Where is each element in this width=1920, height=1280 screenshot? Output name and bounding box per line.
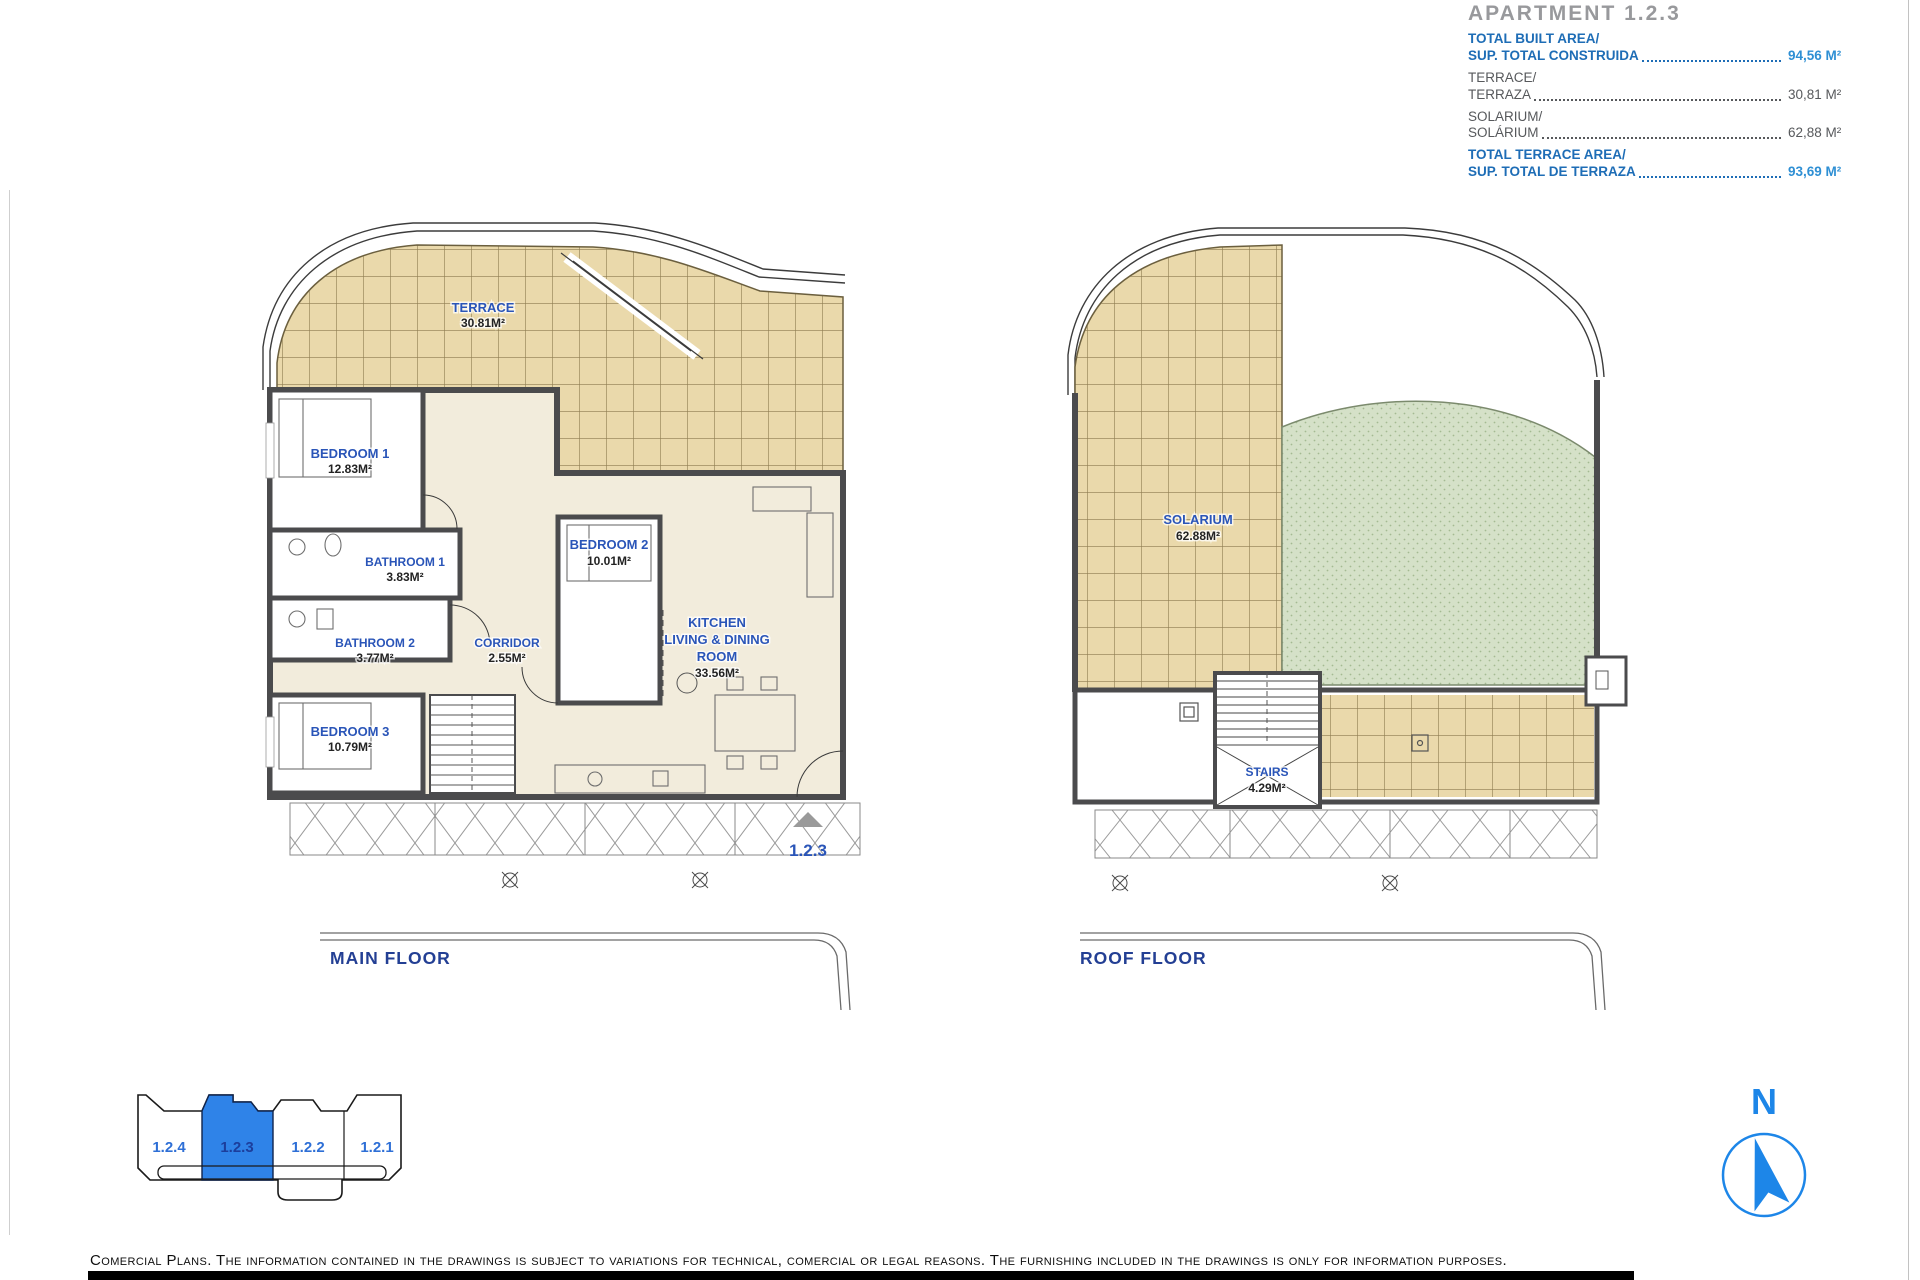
info-value: 62,88 M² — [1784, 125, 1892, 142]
label-kitchen-2: LIVING & DINING — [664, 632, 769, 647]
building-key-plan: 1.2.4 1.2.3 1.2.2 1.2.1 — [120, 1080, 430, 1215]
main-floor-plan: 1.2.3 TERRACE 30.81M² BEDROOM 1 12.83M² … — [255, 195, 875, 900]
main-floor-caption: MAIN FLOOR — [330, 948, 451, 969]
info-label-es: TERRAZA — [1468, 87, 1531, 104]
area-bathroom1: 3.83M² — [386, 570, 423, 584]
survey-markers — [502, 872, 708, 888]
area-terrace: 30.81M² — [461, 316, 505, 330]
stairwell — [430, 695, 515, 793]
label-corridor: CORRIDOR — [474, 636, 540, 650]
info-label-en: SOLARIUM/ — [1468, 109, 1784, 126]
label-bathroom1: BATHROOM 1 — [365, 555, 445, 569]
area-bathroom2: 3.77M² — [356, 651, 393, 665]
dot-leader — [1642, 60, 1781, 62]
footer-bar — [88, 1271, 1634, 1280]
window — [266, 423, 274, 478]
plan-sheet: APARTMENT 1.2.3 TOTAL BUILT AREA/ SUP. T… — [0, 0, 1920, 1280]
info-label-en: TOTAL BUILT AREA/ — [1468, 31, 1784, 48]
roof-bottom-tiles — [1322, 695, 1594, 797]
label-kitchen-3: ROOM — [697, 649, 737, 664]
label-kitchen-1: KITCHEN — [688, 615, 746, 630]
info-value: 93,69 M² — [1784, 164, 1892, 181]
dot-leader — [1534, 99, 1781, 101]
roof-floor-section-line — [1078, 930, 1618, 1012]
structure-strip — [1095, 810, 1597, 858]
page-edge-left — [9, 190, 10, 1235]
info-label-es: SOLÁRIUM — [1468, 125, 1539, 142]
area-solarium: 62.88M² — [1176, 529, 1220, 543]
info-value: 30,81 M² — [1784, 87, 1892, 104]
label-bedroom3: BEDROOM 3 — [311, 724, 390, 739]
area-bedroom3: 10.79M² — [328, 740, 372, 754]
info-row-terrace: TERRACE/ TERRAZA 30,81 M² — [1468, 70, 1892, 104]
north-label: N — [1751, 1081, 1777, 1122]
solarium-floor — [1075, 245, 1282, 690]
compass: N — [1712, 1078, 1822, 1228]
area-kitchen: 33.56M² — [695, 666, 739, 680]
main-floor-section-line — [318, 930, 863, 1012]
window — [266, 717, 274, 767]
roof-floor-plan: SOLARIUM 62.88M² STAIRS 4.29M² — [1060, 195, 1640, 900]
area-corridor: 2.55M² — [488, 651, 525, 665]
key-unit-1-2-4[interactable]: 1.2.4 — [152, 1139, 186, 1156]
info-label-es: SUP. TOTAL CONSTRUIDA — [1468, 48, 1639, 65]
entrance-marker-label: 1.2.3 — [789, 841, 827, 860]
info-row-solarium: SOLARIUM/ SOLÁRIUM 62,88 M² — [1468, 109, 1892, 143]
label-bedroom1: BEDROOM 1 — [311, 446, 390, 461]
survey-markers — [1112, 875, 1398, 891]
label-bathroom2: BATHROOM 2 — [335, 636, 415, 650]
disclaimer-text: Comercial Plans. The information contain… — [90, 1252, 1507, 1269]
label-stairs: STAIRS — [1245, 765, 1288, 779]
label-bedroom2: BEDROOM 2 — [570, 537, 649, 552]
info-label-en: TOTAL TERRACE AREA/ — [1468, 147, 1784, 164]
info-label-en: TERRACE/ — [1468, 70, 1784, 87]
apartment-info-panel: APARTMENT 1.2.3 TOTAL BUILT AREA/ SUP. T… — [1468, 2, 1892, 181]
dot-leader — [1639, 176, 1781, 178]
info-label-es: SUP. TOTAL DE TERRAZA — [1468, 164, 1636, 181]
key-unit-1-2-2[interactable]: 1.2.2 — [291, 1139, 324, 1156]
label-solarium: SOLARIUM — [1163, 512, 1232, 527]
info-row-terrace-total: TOTAL TERRACE AREA/ SUP. TOTAL DE TERRAZ… — [1468, 147, 1892, 181]
page-edge-right — [1908, 0, 1909, 1280]
key-unit-1-2-3[interactable]: 1.2.3 — [220, 1139, 253, 1156]
info-row-built-area: TOTAL BUILT AREA/ SUP. TOTAL CONSTRUIDA … — [1468, 31, 1892, 65]
dot-leader — [1542, 137, 1781, 139]
roof-step — [1586, 657, 1626, 705]
label-terrace: TERRACE — [452, 300, 515, 315]
green-deck — [1282, 401, 1595, 685]
structure-strip — [290, 803, 860, 855]
roof-floor-caption: ROOF FLOOR — [1080, 948, 1207, 969]
apartment-title: APARTMENT 1.2.3 — [1468, 2, 1892, 26]
key-unit-1-2-1[interactable]: 1.2.1 — [360, 1139, 393, 1156]
info-value: 94,56 M² — [1784, 48, 1892, 65]
area-stairs: 4.29M² — [1248, 781, 1285, 795]
area-bedroom2: 10.01M² — [587, 554, 631, 568]
area-bedroom1: 12.83M² — [328, 462, 372, 476]
key-unit-selected-shape[interactable] — [202, 1095, 273, 1180]
